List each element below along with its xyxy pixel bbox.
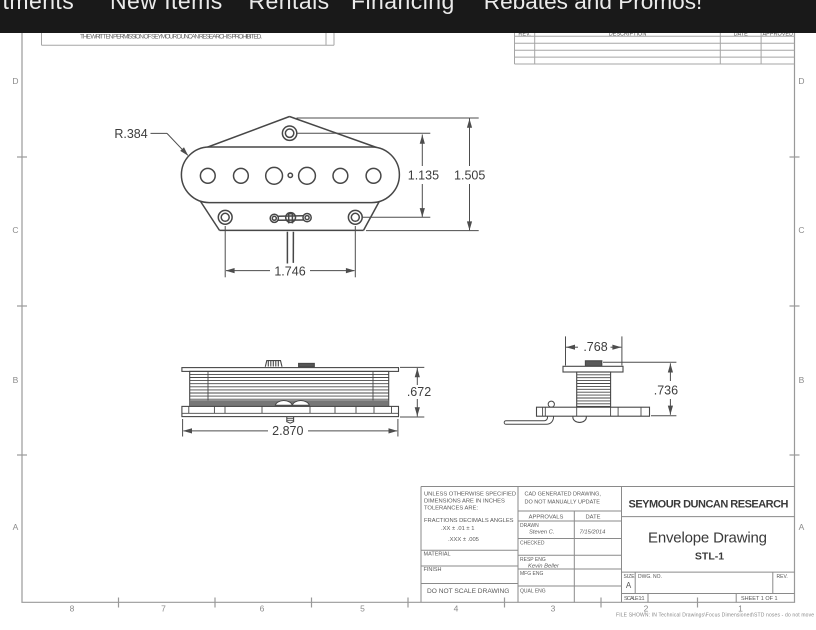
svg-text:Kevin Beller: Kevin Beller: [528, 564, 560, 570]
svg-text:D: D: [798, 76, 804, 86]
svg-text:DO NOT SCALE DRAWING: DO NOT SCALE DRAWING: [427, 588, 509, 595]
svg-text:Steven C.: Steven C.: [529, 530, 554, 536]
svg-text:.736: .736: [654, 384, 678, 398]
svg-text:MATERIAL: MATERIAL: [424, 552, 451, 558]
svg-text:RESP ENG: RESP ENG: [520, 557, 546, 563]
svg-text:R.384: R.384: [114, 127, 147, 141]
svg-text:B: B: [13, 375, 19, 385]
svg-text:DATE: DATE: [585, 515, 600, 521]
svg-text:4: 4: [454, 604, 459, 614]
svg-text:CHECKED: CHECKED: [520, 541, 545, 547]
svg-text:.672: .672: [407, 385, 431, 399]
svg-text:1.505: 1.505: [454, 168, 485, 182]
svg-text:DWG. NO.: DWG. NO.: [638, 574, 662, 580]
svg-text:APPROVALS: APPROVALS: [529, 515, 564, 521]
svg-text:C: C: [12, 225, 18, 235]
svg-text:SIZE: SIZE: [624, 574, 636, 580]
svg-text:SCALE 1:1: SCALE 1:1: [624, 596, 645, 602]
svg-text:DRAWN: DRAWN: [520, 523, 539, 529]
svg-text:C: C: [798, 225, 804, 235]
svg-text:QUAL ENG: QUAL ENG: [520, 589, 546, 595]
svg-text:7: 7: [161, 604, 166, 614]
svg-text:SHEET 1 OF 1: SHEET 1 OF 1: [741, 596, 778, 602]
svg-text:FRACTIONS DECIMALS ANGLES: FRACTIONS DECIMALS ANGLES: [424, 518, 514, 524]
svg-text:UNLESS OTHERWISE SPECIFIED: UNLESS OTHERWISE SPECIFIED: [424, 492, 516, 498]
svg-text:FILE SHOWN: IN Technical Drawi: FILE SHOWN: IN Technical Drawings\Focus …: [616, 613, 814, 619]
svg-text:CAD GENERATED DRAWING,: CAD GENERATED DRAWING,: [525, 492, 602, 498]
svg-text:A: A: [799, 522, 805, 532]
svg-text:MFG ENG: MFG ENG: [520, 571, 543, 577]
svg-text:SEYMOUR DUNCAN RESEARCH: SEYMOUR DUNCAN RESEARCH: [629, 499, 789, 511]
svg-text:B: B: [799, 375, 805, 385]
svg-text:.768: .768: [583, 340, 607, 354]
svg-text:DIMENSIONS ARE IN INCHES: DIMENSIONS ARE IN INCHES: [424, 499, 505, 505]
svg-text:FINISH: FINISH: [424, 567, 442, 573]
svg-text:THE WRITTEN PERMISSION OF SEYM: THE WRITTEN PERMISSION OF SEYMOUR DUNCAN…: [80, 33, 262, 40]
svg-text:Envelope Drawing: Envelope Drawing: [648, 530, 767, 547]
svg-text:A: A: [13, 522, 19, 532]
svg-text:2.870: 2.870: [272, 424, 303, 438]
svg-text:1.746: 1.746: [274, 264, 305, 278]
svg-text:D: D: [12, 76, 18, 86]
svg-text:.XXX ± .005: .XXX ± .005: [448, 537, 479, 543]
svg-text:REV.: REV.: [777, 574, 788, 580]
svg-text:8: 8: [70, 604, 75, 614]
svg-text:DO NOT MANUALLY UPDATE: DO NOT MANUALLY UPDATE: [525, 500, 601, 506]
svg-text:STL-1: STL-1: [695, 551, 724, 563]
svg-text:6: 6: [260, 604, 265, 614]
svg-text:5: 5: [360, 604, 365, 614]
svg-text:7/15/2014: 7/15/2014: [580, 530, 606, 536]
svg-text:1.135: 1.135: [408, 168, 439, 182]
svg-text:.XX ± .01 ± 1: .XX ± .01 ± 1: [441, 526, 474, 532]
svg-text:TOLERANCES ARE:: TOLERANCES ARE:: [424, 506, 478, 512]
svg-text:3: 3: [551, 604, 556, 614]
svg-text:A: A: [626, 581, 632, 590]
